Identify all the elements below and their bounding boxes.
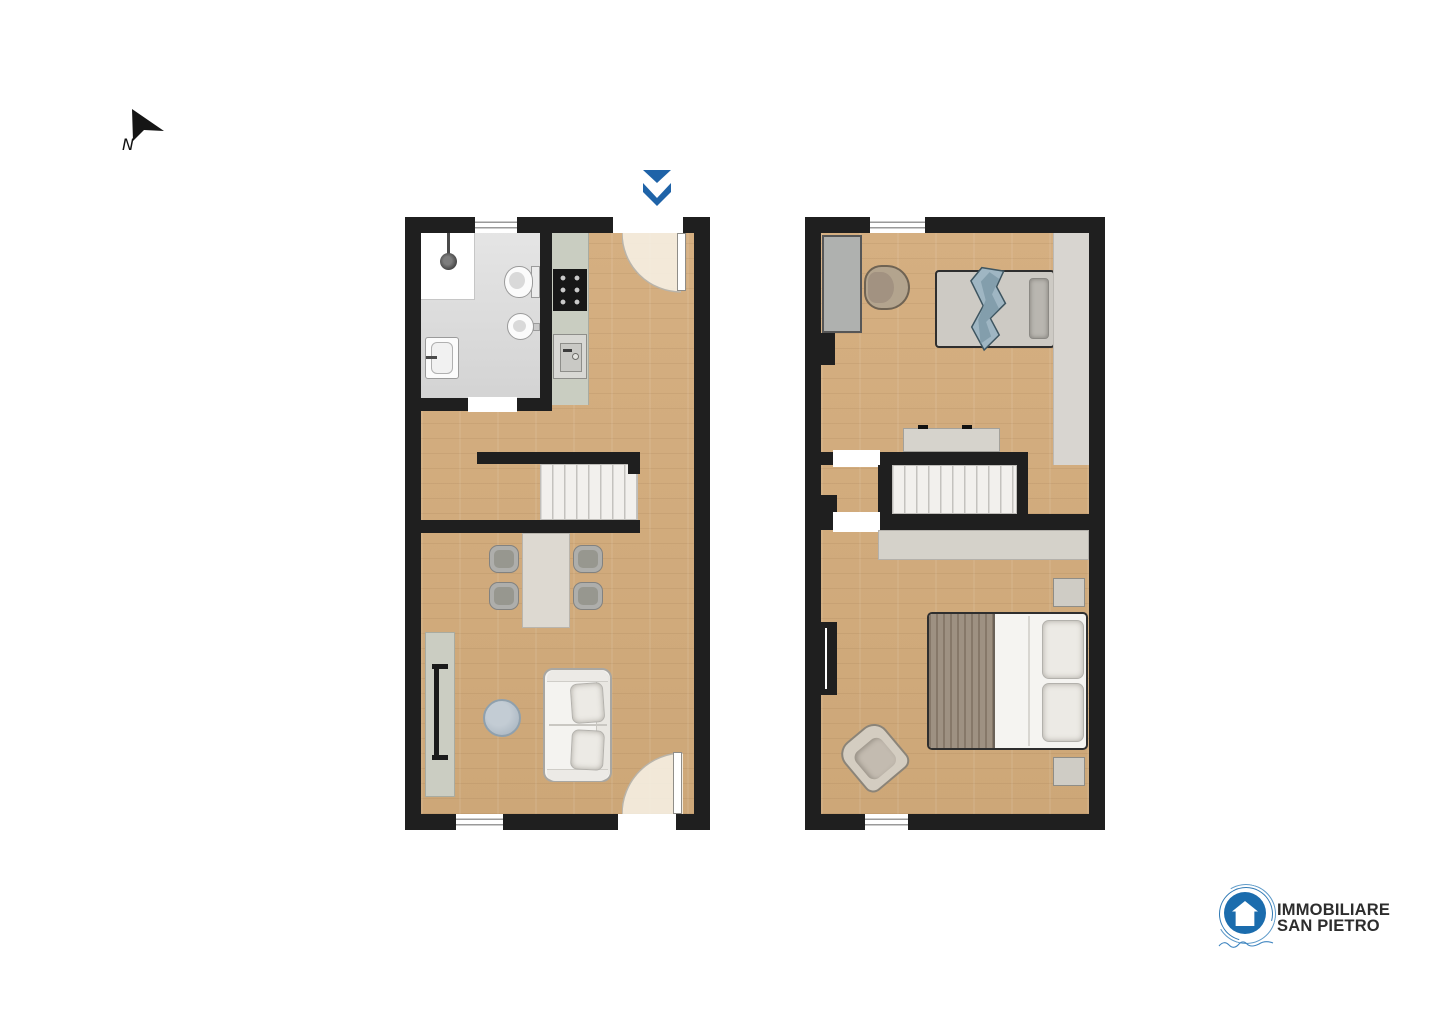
house-icon: [1232, 901, 1258, 926]
sofa-armrest-top: [547, 670, 608, 682]
coffee-table-pouf: [483, 699, 521, 737]
sofa-pillow: [570, 682, 606, 724]
garden-door-leaf: [673, 752, 682, 814]
wall-niche: [821, 622, 837, 695]
window-top: [870, 217, 925, 233]
bed-blanket-blue: [952, 264, 1020, 354]
north-indicator: N: [118, 105, 178, 160]
garden-door-opening: [618, 814, 676, 830]
sideboard: [425, 632, 455, 797]
dining-chair: [573, 545, 603, 573]
single-bed: [935, 270, 1055, 348]
dresser-handle: [918, 425, 928, 429]
double-bed: [927, 612, 1088, 750]
armchair-bedroom1: [864, 265, 910, 310]
toilet-bowl-inner: [509, 272, 525, 289]
entrance-door-leaf: [677, 233, 686, 291]
wardrobe: [822, 235, 862, 333]
dining-table: [522, 533, 570, 628]
kitchen-sink: [553, 334, 587, 379]
shower: [421, 233, 475, 300]
window-top: [475, 217, 517, 233]
entrance-opening: [613, 217, 683, 233]
radiator-bar: [434, 666, 439, 758]
radiator-cap-top: [432, 664, 448, 669]
bed-pillow: [1042, 620, 1084, 679]
north-label: N: [122, 135, 134, 154]
sofa-pillow: [570, 729, 605, 771]
bidet-faucet: [533, 323, 540, 331]
washbasin: [425, 337, 459, 379]
stair-right-wall: [1017, 452, 1028, 514]
bed-pillow: [1042, 683, 1084, 742]
staircase-ground: [540, 464, 638, 520]
toilet-bowl: [504, 266, 533, 298]
armchair-seat: [868, 272, 894, 303]
logo-line2: SAN PIETRO: [1277, 919, 1390, 935]
window-bottom: [865, 814, 908, 830]
dining-chair: [489, 545, 519, 573]
chair-seat: [494, 587, 514, 605]
logo-wordmark: IMMOBILIARE SAN PIETRO: [1277, 903, 1390, 934]
shower-head: [440, 253, 457, 270]
chair-seat: [578, 550, 598, 568]
nightstand-bottom: [1053, 757, 1085, 786]
kitchen-faucet: [563, 349, 572, 352]
bedroom1-door-opening: [833, 450, 880, 467]
cooktop: [553, 269, 587, 311]
sofa: [543, 668, 612, 782]
bedroom2-door-opening: [833, 512, 880, 532]
chair-seat: [578, 587, 598, 605]
bathroom-door-opening: [468, 397, 517, 412]
built-in-closet: [878, 530, 1089, 560]
dining-chair: [489, 582, 519, 610]
wall-niche-line: [825, 628, 827, 689]
kitchen-counter: [552, 233, 589, 405]
floor-plan-page: { "north_indicator": { "label": "N" }, "…: [0, 0, 1440, 1018]
bidet-bowl-inner: [513, 320, 526, 332]
stair-lower-wall: [421, 520, 640, 533]
nightstand-top: [1053, 578, 1085, 607]
wall-stub-bedroom1: [821, 333, 835, 365]
dresser: [903, 428, 1000, 452]
chair-seat: [494, 550, 514, 568]
dining-chair: [573, 582, 603, 610]
armchair-bedroom2: [835, 717, 914, 796]
entrance-arrow-icon: [642, 170, 672, 206]
radiator-cap-bottom: [432, 755, 448, 760]
stair-left-wall: [878, 465, 892, 514]
kitchen-sink-drain: [572, 353, 579, 360]
window-bottom: [456, 814, 503, 830]
stair-wall-nub: [628, 452, 640, 474]
stair-upper-wall: [477, 452, 640, 464]
staircase-first: [892, 465, 1017, 514]
sofa-armrest-bottom: [547, 769, 608, 781]
logo-tagline-script: [1217, 938, 1275, 950]
agency-logo: IMMOBILIARE SAN PIETRO: [1212, 882, 1372, 954]
bed-blanket-taupe: [929, 614, 995, 748]
toilet: [503, 263, 540, 301]
bed-pillow: [1029, 278, 1049, 339]
duvet-fold-line: [1028, 616, 1030, 746]
dresser-handle: [962, 425, 972, 429]
bathroom-right-wall: [540, 233, 552, 405]
floor-plan-first: [805, 217, 1105, 830]
bidet-bowl: [507, 313, 534, 340]
entrance-door-swing: [622, 233, 683, 294]
bidet: [507, 313, 540, 342]
washbasin-faucet: [426, 356, 437, 359]
attic-ledge-strip: [1053, 233, 1089, 465]
sofa-seat-divider: [549, 724, 607, 726]
logo-house-emblem: [1224, 892, 1266, 934]
floor-plan-ground: [405, 217, 710, 830]
